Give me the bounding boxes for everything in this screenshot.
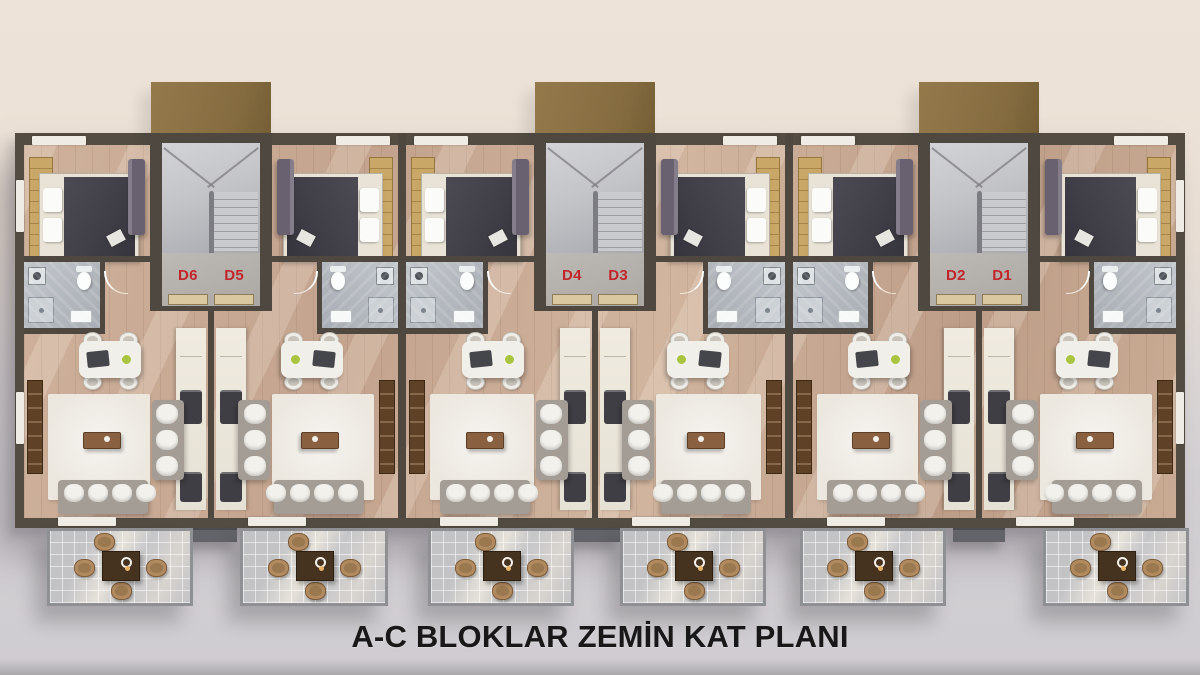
unit-D4-living-zone (406, 328, 592, 518)
terrace-table-icon (855, 551, 893, 581)
dining-tray-icon (86, 350, 110, 368)
door-mat (552, 294, 592, 305)
bathroom-door-arc (487, 271, 511, 294)
terrace-chair-icon (74, 559, 95, 577)
stair-tower: D6D5 (150, 133, 272, 311)
sink-icon (453, 310, 475, 323)
entrance-hall: D4D3 (546, 253, 644, 306)
terrace-chair-icon (1070, 559, 1091, 577)
door-mat (598, 294, 638, 305)
terrace-table-icon (483, 551, 521, 581)
stairwell (162, 143, 260, 253)
toilet-bowl-icon (845, 272, 859, 290)
sofa-cushion (112, 484, 132, 502)
unit-D2-bedroom-zone (793, 147, 918, 328)
coffee-table-icon (466, 432, 504, 449)
window-sill (1114, 136, 1168, 145)
sink-icon (1102, 310, 1124, 323)
dining-table-icon (848, 341, 910, 378)
bowl-icon (120, 353, 133, 366)
sofa-cushion (244, 404, 266, 424)
bed-pillow (812, 218, 831, 242)
party-wall (785, 133, 793, 518)
unit-D6-living-zone (24, 328, 208, 518)
stair-tower: D4D3 (534, 133, 656, 311)
dining-tray-icon (312, 350, 336, 368)
tv-console-icon (409, 380, 425, 474)
floorplan-canvas: D6D5D4D3D2D1 A-C BLOKLAR ZEMİN KAT PLANI (0, 0, 1200, 675)
sofa-cushion (290, 484, 310, 502)
toilet-bowl-icon (1103, 272, 1117, 290)
washing-machine-icon (1154, 267, 1172, 285)
sofa-icon (274, 480, 364, 514)
washing-machine-icon (376, 267, 394, 285)
sofa-icon (920, 400, 952, 480)
sofa-cushion (470, 484, 490, 502)
stair-landing-line (164, 147, 215, 188)
sofa-cushion (881, 484, 901, 502)
unit-D5-bedroom-zone (272, 147, 398, 328)
sofa-cushion (677, 484, 697, 502)
unit-D3-living-zone (598, 328, 785, 518)
washing-machine-icon (410, 267, 428, 285)
washing-machine-icon (763, 267, 781, 285)
terrace-chair-icon (268, 559, 289, 577)
entrance-hall: D2D1 (930, 253, 1028, 306)
sofa-icon (1052, 480, 1142, 514)
terrace-chair-icon (899, 559, 920, 577)
window-sill (32, 136, 86, 145)
terrace-door-sill (440, 517, 498, 526)
terrace-chair-icon (305, 582, 326, 600)
toilet-icon (716, 266, 732, 272)
stair-landing-line (932, 147, 983, 188)
bathroom-door-arc (680, 271, 704, 294)
terrace-chair-icon (1090, 533, 1111, 551)
lounge-chair-icon (661, 159, 678, 235)
door-mat (168, 294, 208, 305)
sofa-icon (622, 400, 654, 480)
bed-icon (670, 173, 770, 261)
unit-D3-bedroom-zone (656, 147, 785, 328)
stairwell (546, 143, 644, 253)
shower-icon (368, 297, 394, 323)
sofa-cushion (628, 404, 650, 424)
sofa-cushion (1116, 484, 1136, 502)
bathroom-door-arc (872, 271, 896, 294)
bed-icon (39, 173, 139, 261)
bathroom (793, 262, 873, 328)
washing-machine-icon (28, 267, 46, 285)
bed-pillow (812, 188, 831, 212)
bathroom-door-arc (104, 271, 128, 294)
shower-icon (1146, 297, 1172, 323)
terrace-chair-icon (94, 533, 115, 551)
window-sill (16, 392, 24, 444)
bathroom (1089, 262, 1176, 328)
sofa-icon (152, 400, 184, 480)
sofa-cushion (725, 484, 745, 502)
terrace-chair-icon (684, 582, 705, 600)
terrace-chair-icon (475, 533, 496, 551)
bathroom-door-arc (1066, 271, 1090, 294)
toilet-bowl-icon (717, 272, 731, 290)
terrace-chair-icon (719, 559, 740, 577)
sofa-icon (661, 480, 751, 514)
bowl-icon (1064, 353, 1077, 366)
stair-landing-line (591, 147, 642, 188)
sofa-cushion (156, 430, 178, 450)
unit-D4-terrace (428, 528, 574, 606)
shower-icon (28, 297, 54, 323)
bathroom (406, 262, 488, 328)
bed-icon (283, 173, 383, 261)
unit-D3-terrace (620, 528, 766, 606)
sofa-cushion (88, 484, 108, 502)
coffee-table-icon (301, 432, 339, 449)
terrace-door-sill (632, 517, 690, 526)
terrace-chair-icon (1107, 582, 1128, 600)
toilet-bowl-icon (460, 272, 474, 290)
counter-line (180, 356, 202, 357)
sink-icon (330, 310, 352, 323)
lounge-chair-icon (896, 159, 913, 235)
unit-D5-living-zone (214, 328, 398, 518)
stair-spine (209, 191, 214, 253)
bathroom-door-arc (294, 271, 318, 294)
entrance-step (569, 528, 621, 542)
terrace-table-icon (675, 551, 713, 581)
unit-D1-living-zone (982, 328, 1176, 518)
tv-console-icon (796, 380, 812, 474)
tv-console-icon (766, 380, 782, 474)
unit-D2-living-zone (793, 328, 976, 518)
sofa-icon (238, 400, 270, 480)
stair-spine (977, 191, 982, 253)
bed-duvet (446, 177, 517, 257)
unit-D6-bedroom-zone (24, 147, 150, 328)
sofa-cushion (540, 404, 562, 424)
shower-icon (755, 297, 781, 323)
unit-label-d1: D1 (992, 267, 1012, 284)
sofa-cushion (494, 484, 514, 502)
unit-D1-terrace (1043, 528, 1189, 606)
stairwell (930, 143, 1028, 253)
terrace-door-sill (1016, 517, 1074, 526)
bed-duvet (833, 177, 904, 257)
terrace-chair-icon (667, 533, 688, 551)
sink-icon (716, 310, 738, 323)
entrance-canopy (919, 82, 1039, 134)
sofa-cushion (905, 484, 925, 502)
coffee-table-icon (687, 432, 725, 449)
shower-icon (797, 297, 823, 323)
stair-landing-line (975, 147, 1026, 188)
sofa-cushion (701, 484, 721, 502)
sofa-cushion (924, 404, 946, 424)
sofa-cushion (833, 484, 853, 502)
bathroom (703, 262, 785, 328)
tv-console-icon (379, 380, 395, 474)
door-mat (982, 294, 1022, 305)
terrace-chair-icon (288, 533, 309, 551)
dining-table-icon (281, 341, 343, 378)
sofa-icon (536, 400, 568, 480)
terrace-chair-icon (455, 559, 476, 577)
coffee-table-icon (1076, 432, 1114, 449)
bed-pillow (747, 218, 766, 242)
sofa-cushion (446, 484, 466, 502)
sofa-cushion (1012, 404, 1034, 424)
bed-duvet (674, 177, 745, 257)
stair-spine (593, 191, 598, 253)
sofa-cushion (540, 430, 562, 450)
terrace-chair-icon (340, 559, 361, 577)
terrace-chair-icon (492, 582, 513, 600)
toilet-icon (844, 266, 860, 272)
unit-D4-bedroom-zone (406, 147, 534, 328)
entrance-hall: D6D5 (162, 253, 260, 306)
unit-label-d2: D2 (946, 267, 966, 284)
bowl-icon (675, 353, 688, 366)
toilet-bowl-icon (77, 272, 91, 290)
lounge-chair-icon (277, 159, 294, 235)
bathroom (24, 262, 105, 328)
terrace-table-icon (296, 551, 334, 581)
bed-pillow (360, 218, 379, 242)
sofa-cushion (1068, 484, 1088, 502)
unit-label-d5: D5 (224, 267, 244, 284)
window-sill (801, 136, 855, 145)
unit-D6-terrace (47, 528, 193, 606)
bed-icon (421, 173, 521, 261)
window-sill (1176, 392, 1184, 444)
stair-landing-line (207, 147, 258, 188)
terrace-table-icon (102, 551, 140, 581)
bed-pillow (1138, 218, 1157, 242)
entrance-canopy (151, 82, 271, 134)
lounge-chair-icon (128, 159, 145, 235)
toilet-icon (76, 266, 92, 272)
counter-line (564, 356, 586, 357)
bed-duvet (287, 177, 358, 257)
unit-label-d3: D3 (608, 267, 628, 284)
sofa-cushion (518, 484, 538, 502)
entrance-step (953, 528, 1005, 542)
unit-label-d6: D6 (178, 267, 198, 284)
terrace-chair-icon (647, 559, 668, 577)
terrace-chair-icon (827, 559, 848, 577)
sofa-cushion (857, 484, 877, 502)
unit-D5-terrace (240, 528, 388, 606)
counter-line (948, 356, 970, 357)
sofa-icon (827, 480, 917, 514)
sofa-cushion (244, 430, 266, 450)
window-sill (723, 136, 777, 145)
terrace-chair-icon (111, 582, 132, 600)
sofa-cushion (156, 404, 178, 424)
bed-pillow (425, 218, 444, 242)
entrance-canopy (535, 82, 655, 134)
sofa-cushion (314, 484, 334, 502)
sofa-icon (1006, 400, 1038, 480)
terrace-chair-icon (1142, 559, 1163, 577)
sofa-cushion (64, 484, 84, 502)
sink-icon (70, 310, 92, 323)
bed-pillow (425, 188, 444, 212)
sofa-icon (58, 480, 148, 514)
dining-tray-icon (1087, 350, 1111, 368)
shower-icon (410, 297, 436, 323)
sofa-cushion (1012, 456, 1034, 476)
window-sill (336, 136, 390, 145)
window-sill (1176, 180, 1184, 232)
terrace-chair-icon (864, 582, 885, 600)
terrace-chair-icon (527, 559, 548, 577)
sofa-cushion (540, 456, 562, 476)
stair-steps-icon (212, 192, 258, 251)
dining-table-icon (1056, 341, 1118, 378)
sofa-cushion (924, 456, 946, 476)
sofa-icon (440, 480, 530, 514)
tv-console-icon (1157, 380, 1173, 474)
bed-duvet (64, 177, 135, 257)
toilet-icon (330, 266, 346, 272)
party-wall (398, 133, 406, 518)
unit-D1-bedroom-zone (1040, 147, 1176, 328)
dining-table-icon (667, 341, 729, 378)
terrace-table-icon (1098, 551, 1136, 581)
terrace-door-sill (827, 517, 885, 526)
bowl-icon (503, 353, 516, 366)
bed-icon (808, 173, 908, 261)
dining-tray-icon (698, 350, 722, 368)
toilet-icon (459, 266, 475, 272)
sofa-cushion (924, 430, 946, 450)
stair-steps-icon (980, 192, 1026, 251)
hall-labels: D4D3 (546, 267, 644, 284)
bed-pillow (360, 188, 379, 212)
hall-labels: D2D1 (930, 267, 1028, 284)
dining-table-icon (79, 341, 141, 378)
stair-landing-line (548, 147, 599, 188)
sofa-cushion (1012, 430, 1034, 450)
coffee-table-icon (852, 432, 890, 449)
bed-pillow (1138, 188, 1157, 212)
window-sill (16, 180, 24, 232)
bowl-icon (889, 353, 902, 366)
terrace-door-sill (58, 517, 116, 526)
window-sill (414, 136, 468, 145)
bed-pillow (43, 218, 62, 242)
coffee-table-icon (83, 432, 121, 449)
stair-steps-icon (596, 192, 642, 251)
sofa-cushion (628, 430, 650, 450)
sofa-cushion (136, 484, 156, 502)
bed-pillow (43, 188, 62, 212)
sofa-cushion (1044, 484, 1064, 502)
door-mat (936, 294, 976, 305)
sofa-cushion (653, 484, 673, 502)
sofa-cushion (156, 456, 178, 476)
sofa-cushion (244, 456, 266, 476)
bathroom (317, 262, 398, 328)
terrace-door-sill (248, 517, 306, 526)
lounge-chair-icon (1045, 159, 1062, 235)
sofa-cushion (338, 484, 358, 502)
bed-pillow (747, 188, 766, 212)
sofa-cushion (266, 484, 286, 502)
lounge-chair-icon (512, 159, 529, 235)
counter-line (988, 356, 1010, 357)
toilet-icon (1102, 266, 1118, 272)
sofa-cushion (1092, 484, 1112, 502)
toilet-bowl-icon (331, 272, 345, 290)
plan-title: A-C BLOKLAR ZEMİN KAT PLANI (0, 619, 1200, 655)
sink-icon (838, 310, 860, 323)
bed-icon (1061, 173, 1161, 261)
dining-table-icon (462, 341, 524, 378)
hall-labels: D6D5 (162, 267, 260, 284)
tv-console-icon (27, 380, 43, 474)
bowl-icon (289, 353, 302, 366)
sofa-cushion (628, 456, 650, 476)
dining-tray-icon (469, 350, 493, 368)
unit-label-d4: D4 (562, 267, 582, 284)
stair-tower: D2D1 (918, 133, 1040, 311)
terrace-chair-icon (146, 559, 167, 577)
dining-tray-icon (855, 350, 879, 368)
counter-line (604, 356, 626, 357)
unit-D2-terrace (800, 528, 946, 606)
counter-line (220, 356, 242, 357)
washing-machine-icon (797, 267, 815, 285)
terrace-chair-icon (847, 533, 868, 551)
door-mat (214, 294, 254, 305)
bed-duvet (1065, 177, 1136, 257)
